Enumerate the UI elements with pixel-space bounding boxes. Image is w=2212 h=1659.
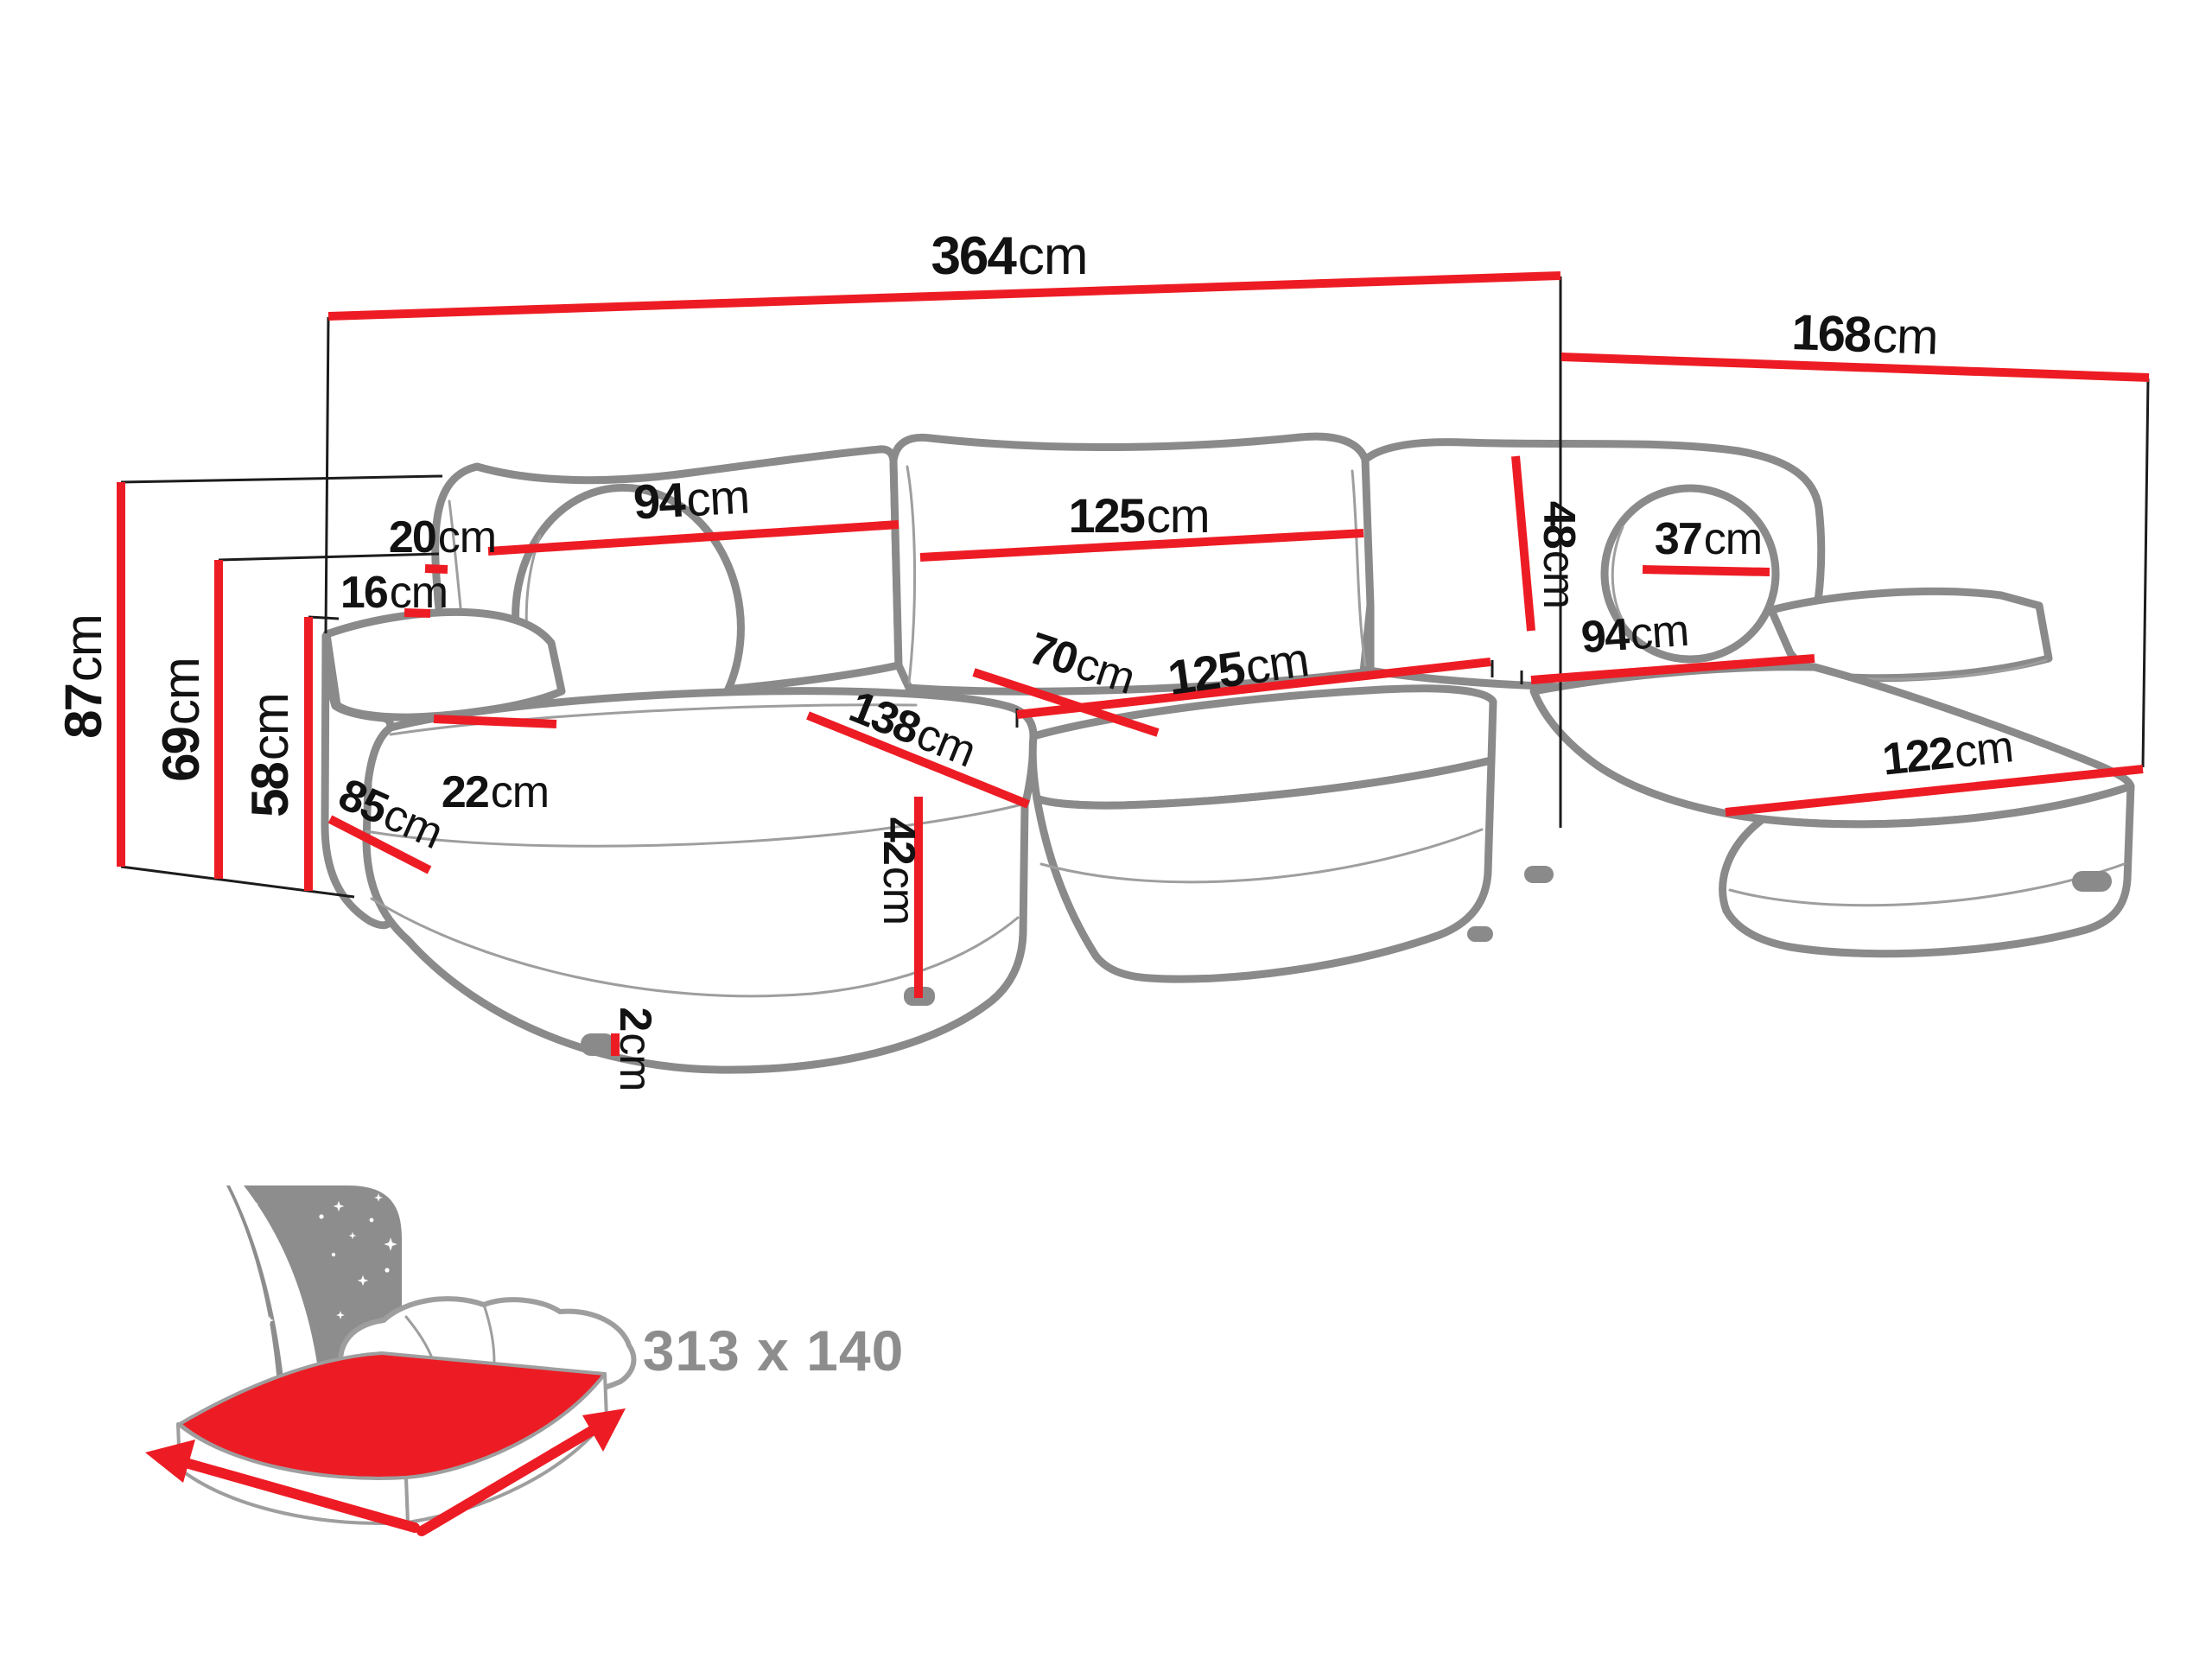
sleeping-area-size-label: 313 x 140 [643,1322,905,1379]
armrest-left-pad [327,612,562,717]
dim-armrest-width: 22cm [442,770,549,815]
dim-overall-depth: 168cm [1790,308,1938,363]
dim-leg-height: 2cm [613,1007,658,1090]
dim-seat-height: 58cm [245,693,296,817]
dim-backrest-left-width: 94cm [632,473,751,527]
sofa-leg [1467,926,1493,942]
dim-base-height: 42cm [876,817,921,925]
sofa-leg [2072,871,2112,892]
measure-line-37 [1643,569,1770,572]
dim-bolster-diameter: 37cm [1655,517,1762,562]
sofa-leg [1524,866,1554,883]
dim-backrest-cushion-height: 48cm [1536,501,1581,608]
dim-back-gap-top: 20cm [389,515,496,560]
sofa-dimension-diagram: 364cm 168cm 87cm 69cm 58cm 94cm 20cm 16c… [0,0,2212,1659]
dim-armrest-height: 69cm [156,658,207,782]
dim-back-gap-bottom: 16cm [340,570,448,615]
measure-line-22 [434,719,556,724]
diagram-canvas [0,0,2212,1659]
sofa-drawing [325,436,2131,1070]
sleeping-function-icon [145,1185,633,1531]
dim-backrest-middle-width: 125cm [1068,492,1209,540]
dim-seat-right-width: 94cm [1580,608,1689,661]
dim-overall-height: 87cm [58,614,110,739]
dim-overall-width: 364cm [931,230,1087,283]
